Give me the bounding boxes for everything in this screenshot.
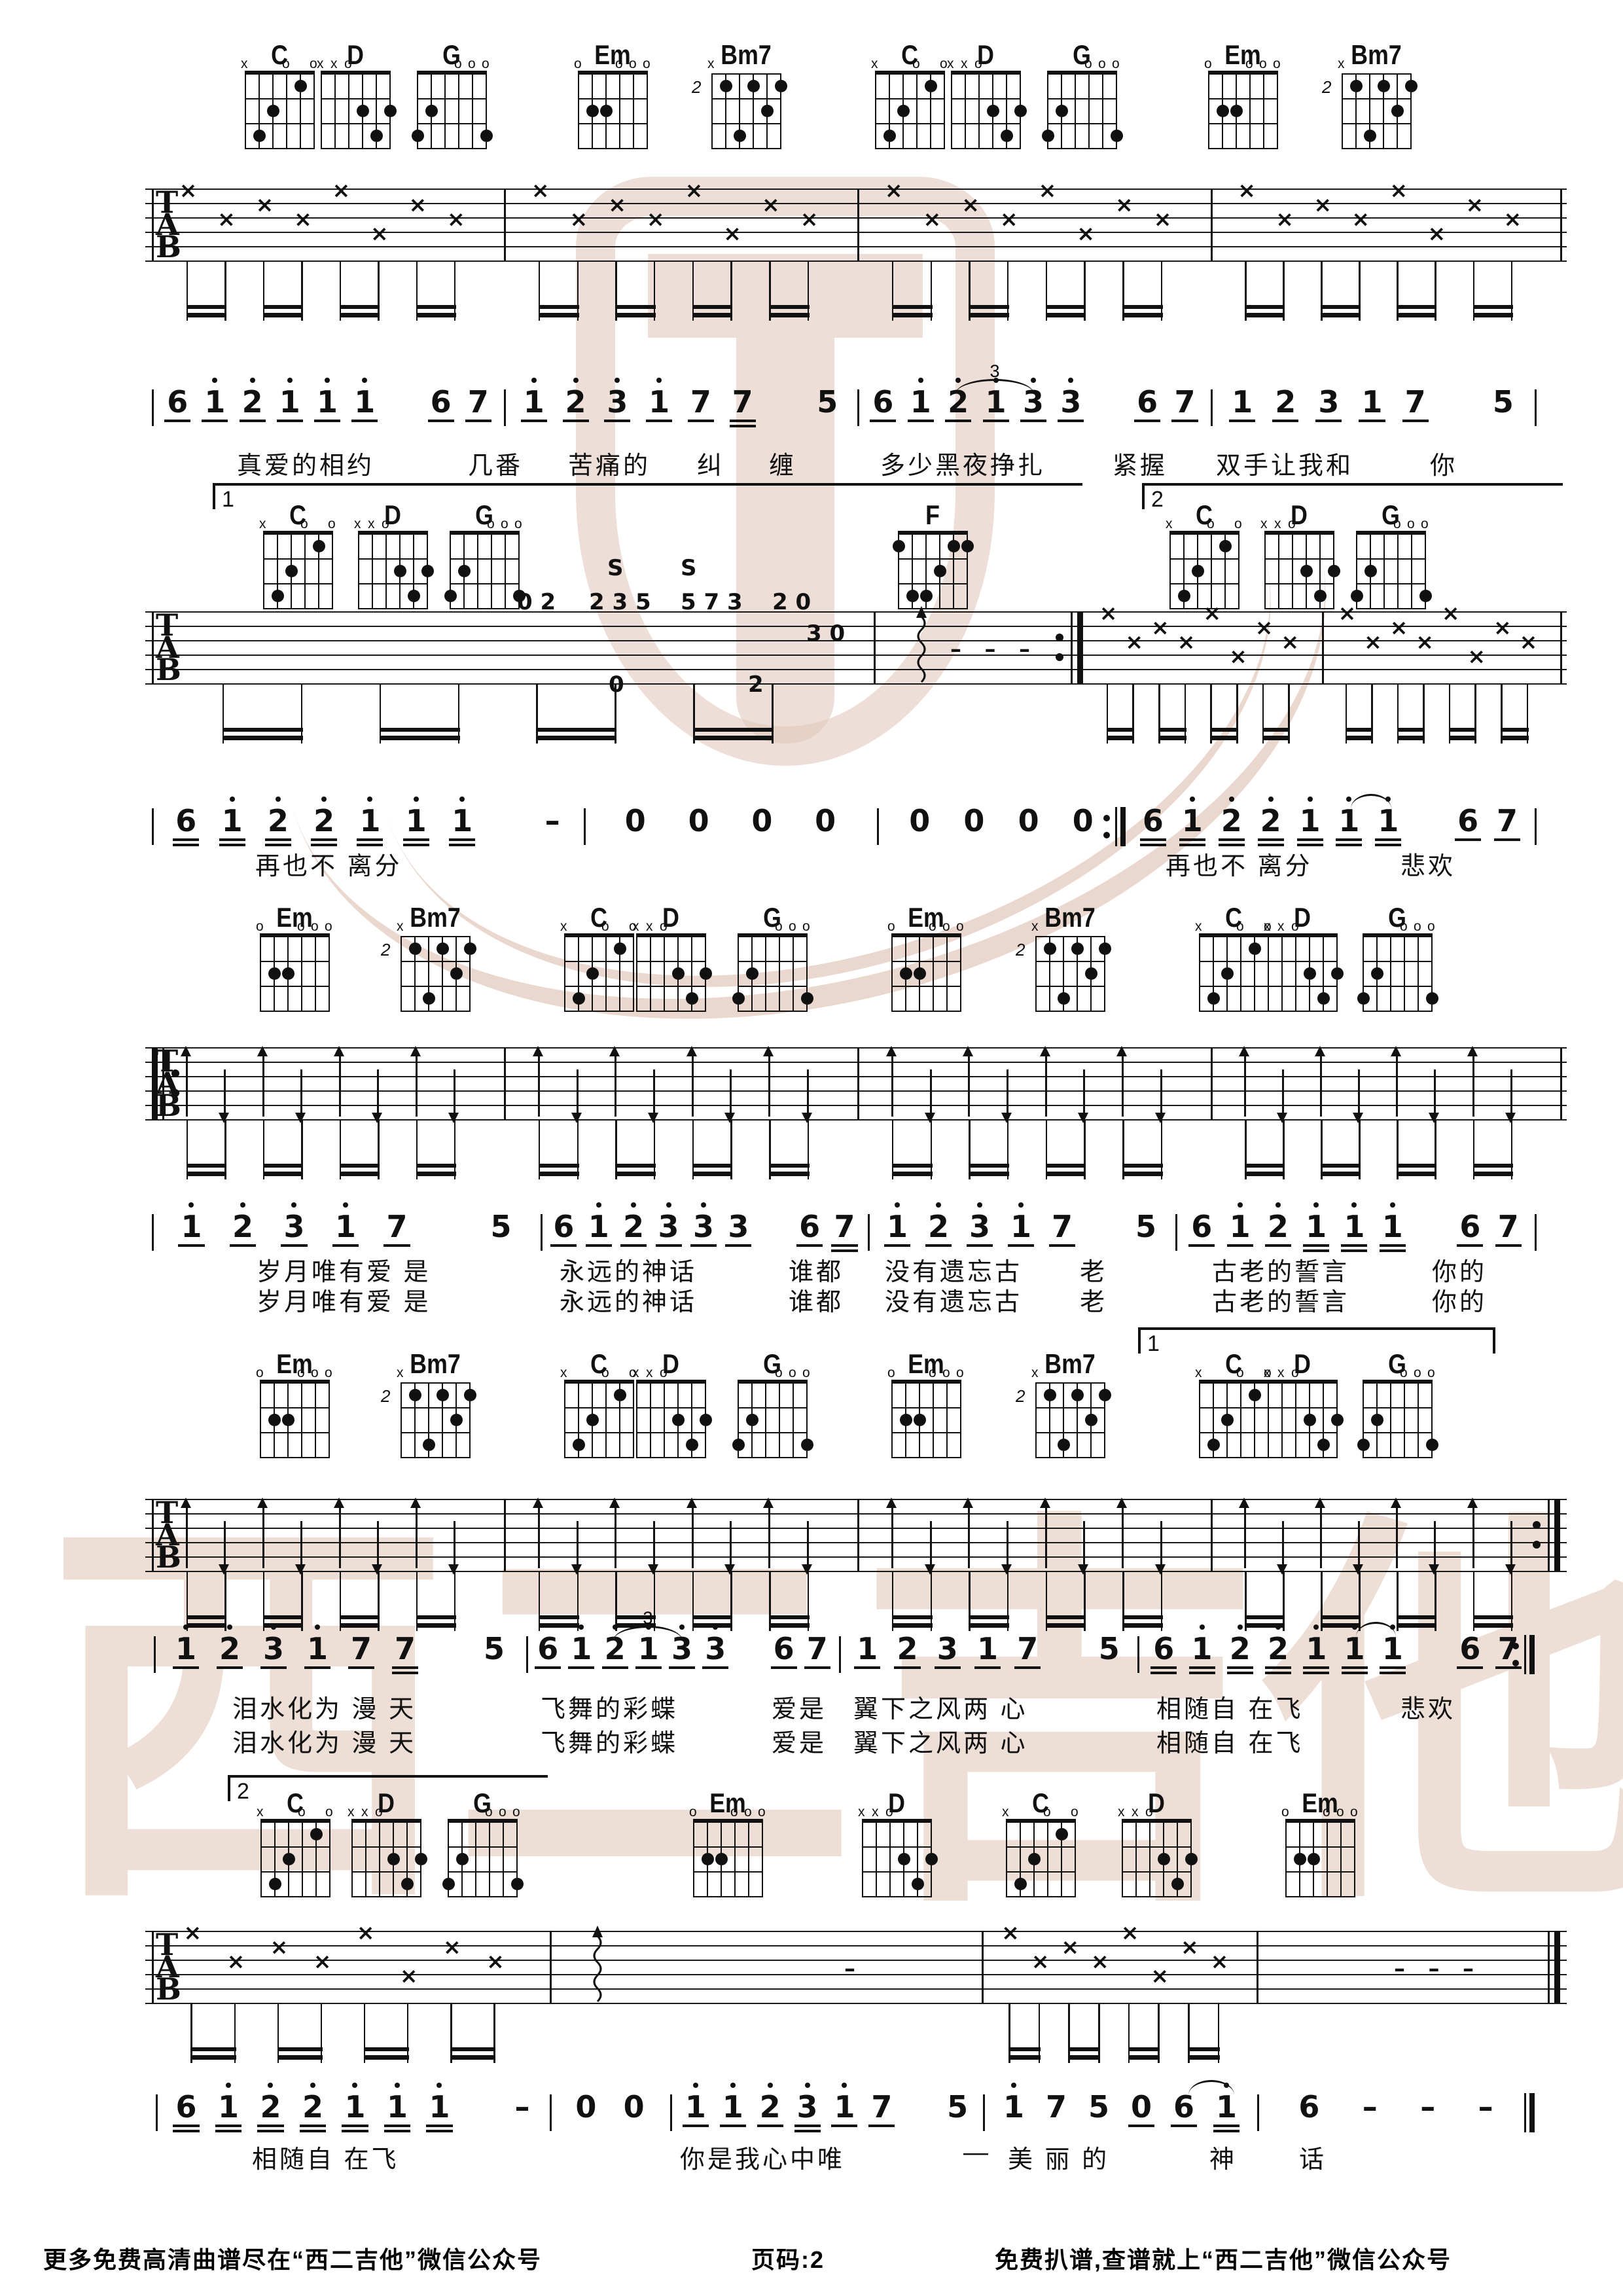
- jianpu-note: 7: [1404, 376, 1427, 427]
- beam: [1397, 1172, 1436, 1176]
- strum-arrow-stem: [416, 1507, 418, 1568]
- strum-arrow-stem: [768, 1507, 770, 1568]
- note-stem: [1321, 1572, 1323, 1631]
- jianpu-note: 2: [1266, 1623, 1290, 1674]
- muted-strum-x: ×: [1229, 643, 1247, 669]
- beam: [263, 313, 303, 317]
- octave-dot: [325, 378, 330, 383]
- strum-arrow-stem: [577, 1069, 579, 1117]
- underline-2: [1189, 1672, 1215, 1674]
- chord-finger-dot: [897, 105, 910, 117]
- beam: [1321, 305, 1361, 309]
- lyric-segment: 泪水化为 漫 天: [232, 1723, 416, 1759]
- underline-2: [1227, 1672, 1253, 1674]
- underline-2: [173, 844, 199, 846]
- jianpu-note: 1: [1181, 795, 1204, 846]
- jianpu-note: 1: [174, 1623, 198, 1674]
- chord-name: C: [565, 1348, 632, 1380]
- lyric-segment: 岁月唯有爱 是: [257, 1282, 431, 1318]
- strum-arrow-up-head: [609, 1498, 620, 1508]
- strum-arrow-stem: [891, 1507, 893, 1568]
- chord-finger-dot: [1085, 967, 1097, 980]
- strum-arrow-stem: [377, 1069, 379, 1117]
- chord-string-marker: x: [1260, 516, 1268, 532]
- note-stem: [1397, 1121, 1399, 1179]
- chord-string-marker: o: [1145, 1804, 1153, 1820]
- chord-nut: [1268, 933, 1338, 937]
- underline-2: [1150, 1672, 1177, 1674]
- underline: [1171, 2125, 1197, 2127]
- chord-finger-dot: [573, 1439, 585, 1451]
- note-stem: [364, 2004, 366, 2063]
- repeat-end-thin: [1548, 1499, 1550, 1571]
- underline: [1375, 838, 1401, 841]
- strum-arrow-stem: [186, 1507, 188, 1568]
- chord-finger-dot: [614, 942, 626, 955]
- underline: [1297, 838, 1323, 841]
- strum-arrow-stem: [1244, 1055, 1246, 1117]
- underline: [257, 2125, 283, 2127]
- chord-string-marker: o: [643, 56, 651, 72]
- strum-arrow-down-head: [1001, 1564, 1012, 1575]
- chord-finger-dot: [1249, 1389, 1261, 1401]
- chord-string-marker: x: [1195, 919, 1202, 935]
- octave-dot: [1229, 797, 1234, 802]
- chord-string-marker: o: [942, 919, 950, 935]
- strum-arrow-down-head: [648, 1113, 658, 1123]
- lyric-segment: 几番: [468, 445, 523, 481]
- jianpu-note: 1: [976, 1623, 999, 1674]
- chord-finger-dot: [423, 1439, 435, 1451]
- chord-string-marker: o: [1291, 919, 1299, 935]
- lyric-segment: 双手让我和: [1216, 445, 1353, 481]
- chord-string-marker: o: [1323, 1804, 1330, 1820]
- lyric-segment: 你是我心中唯: [680, 2139, 845, 2175]
- strum-arrow-stem: [768, 1055, 770, 1117]
- chord-nut: [260, 1819, 330, 1823]
- chord-finger-dot: [586, 1414, 599, 1426]
- chord-string-marker: x: [1166, 516, 1173, 532]
- strum-arrow-up-head: [1467, 1498, 1478, 1508]
- beam: [536, 728, 616, 732]
- lyric-segment: 古老的誓言: [1212, 1282, 1349, 1318]
- note-stem: [1046, 1121, 1048, 1179]
- chord-string-marker: o: [297, 919, 305, 935]
- beam: [1262, 736, 1291, 740]
- muted-strum-x: ×: [294, 206, 312, 232]
- note-stem: [1371, 685, 1373, 744]
- note-stem: [692, 1121, 694, 1179]
- lyric-segment: 飞舞的彩蝶: [541, 1689, 678, 1725]
- note-stem: [1527, 685, 1529, 744]
- muted-strum-x: ×: [1115, 192, 1133, 217]
- lyric-segment: 没有遗忘古: [885, 1282, 1022, 1318]
- jianpu-note: 3: [726, 1201, 750, 1252]
- strum-arrow-up-head: [181, 1046, 191, 1056]
- tab-barline: [1560, 611, 1562, 683]
- jianpu-note: 2: [1266, 1201, 1290, 1252]
- jianpu-note: 6: [1297, 2081, 1321, 2132]
- chord-finger-dot: [1317, 992, 1330, 1005]
- jianpu-note: 2: [259, 2081, 282, 2132]
- tab-barline: [152, 188, 154, 260]
- jianpu-spacer: [1056, 1623, 1080, 1644]
- chord-finger-dot: [914, 967, 926, 980]
- underline: [669, 1666, 695, 1669]
- underline: [465, 420, 491, 422]
- strum-arrow-down-head: [1353, 1564, 1363, 1575]
- beam: [187, 1164, 226, 1168]
- beam: [1128, 2055, 1160, 2060]
- jianpu-note: 1: [1360, 376, 1383, 427]
- strum-arrow-stem: [1434, 1069, 1436, 1117]
- muted-strum-x: ×: [762, 192, 780, 217]
- octave-dot: [701, 1202, 706, 1208]
- muted-strum-x: ×: [723, 221, 741, 246]
- jianpu-spacer: [437, 1201, 461, 1222]
- sheet-music-page: 西二吉他 TAB××××××××××××××××××××××××××××××××…: [0, 0, 1623, 2296]
- strum-arrow-stem: [615, 1507, 616, 1568]
- chord-nut: [1199, 933, 1269, 937]
- muted-strum-x: ×: [961, 192, 980, 217]
- jianpu-note: 5: [1087, 2081, 1111, 2132]
- note-stem: [1423, 685, 1425, 744]
- chord-string-marker: x: [1002, 1804, 1009, 1820]
- octave-dot: [1268, 797, 1274, 802]
- muted-strum-x: ×: [531, 177, 550, 203]
- note-stem: [1161, 262, 1163, 321]
- strum-arrow-stem: [1396, 1507, 1398, 1568]
- note-stem: [1007, 1121, 1009, 1179]
- chord-finger-dot: [511, 1878, 524, 1890]
- strum-arrow-stem: [1472, 1507, 1474, 1568]
- strum-arrow-up-head: [334, 1046, 344, 1056]
- chord-string-marker: o: [974, 56, 982, 72]
- chord-finger-dot: [702, 1853, 714, 1865]
- strum-arrow-stem: [1244, 1507, 1246, 1568]
- note-stem: [1473, 1121, 1475, 1179]
- beam: [416, 1164, 456, 1168]
- underline: [757, 2125, 783, 2127]
- chord-nut: [875, 71, 945, 75]
- beam: [277, 2047, 323, 2051]
- chord-finger-dot: [898, 1853, 910, 1865]
- muted-strum-x: ×: [800, 206, 819, 232]
- chord-finger-dot: [1178, 590, 1190, 602]
- note-stem: [769, 262, 771, 321]
- beam: [187, 313, 226, 317]
- tuplet-number: 3: [990, 361, 999, 382]
- chord-string-marker: x: [330, 56, 338, 72]
- beam: [1397, 736, 1425, 740]
- jianpu-note: 0: [1017, 795, 1041, 846]
- tab-barline: [1257, 1931, 1258, 2003]
- chord-string-marker: o: [574, 56, 582, 72]
- volta-bracket: 1: [213, 483, 1082, 509]
- chord-finger-dot: [1014, 105, 1027, 117]
- octave-dot: [679, 1624, 685, 1630]
- underline: [1342, 1666, 1368, 1669]
- chord-string-marker: x: [368, 516, 375, 532]
- strum-arrow-down-head: [295, 1564, 306, 1575]
- jianpu-note: 7: [1044, 2081, 1068, 2132]
- chord-finger-dot: [573, 992, 585, 1005]
- chord-string-marker: o: [1407, 516, 1415, 532]
- strum-arrow-stem: [730, 1069, 732, 1117]
- chord-finger-dot: [1221, 967, 1234, 980]
- chord-finger-dot: [1308, 1853, 1320, 1865]
- chord-string-marker: x: [1277, 1365, 1285, 1381]
- chord-finger-dot: [1350, 80, 1363, 92]
- strum-arrow-stem: [454, 1069, 455, 1117]
- muted-strum-x: ×: [256, 192, 274, 217]
- chord-nut: [358, 531, 428, 535]
- muted-strum-x: ×: [1099, 600, 1118, 626]
- beam: [340, 1172, 380, 1176]
- tab-annotation: 2 3 5: [589, 589, 651, 615]
- jianpu-note: 1: [1002, 2081, 1026, 2132]
- chord-string-marker: x: [257, 1804, 264, 1820]
- tab-annotation: –: [844, 1956, 855, 1982]
- underline: [1457, 1244, 1483, 1247]
- chord-string-marker: x: [1274, 516, 1281, 532]
- chord-string-marker: o: [802, 919, 810, 935]
- strum-arrow-stem: [416, 1055, 418, 1117]
- beam: [892, 305, 933, 309]
- beam: [539, 1615, 579, 1619]
- beam: [1188, 2055, 1220, 2060]
- beam: [340, 305, 380, 309]
- chord-finger-dot: [746, 967, 758, 980]
- jianpu-note: 0: [622, 2081, 646, 2132]
- chord-string-marker: o: [885, 1804, 893, 1820]
- beam: [416, 313, 456, 317]
- chord-nut: [738, 1380, 808, 1384]
- strum-arrow-up-head: [687, 1498, 697, 1508]
- jianpu-note: 0: [1071, 795, 1095, 846]
- tab-barline: [504, 1047, 506, 1119]
- chord-string-marker: o: [615, 56, 623, 72]
- repeat-start-thin: [162, 1047, 164, 1119]
- note-stem: [301, 685, 303, 744]
- jianpu-note: 0: [813, 795, 837, 846]
- chord-nut: [263, 531, 333, 535]
- chord-finger-dot: [720, 80, 732, 92]
- beam: [969, 305, 1009, 309]
- strum-arrow-stem: [224, 1069, 226, 1117]
- lyric-segment: 缠: [769, 445, 796, 481]
- muted-strum-x: ×: [486, 1948, 505, 1974]
- chord-finger-dot: [394, 565, 406, 577]
- strum-arrow-down-head: [802, 1113, 812, 1123]
- note-stem: [263, 1572, 265, 1631]
- beam: [1473, 305, 1513, 309]
- chord-string-marker: o: [300, 516, 308, 532]
- underline: [311, 838, 337, 841]
- note-stem: [1098, 2004, 1100, 2063]
- chord-string-marker: o: [601, 919, 609, 935]
- octave-dot: [693, 2083, 698, 2088]
- strum-arrow-stem: [1510, 1521, 1512, 1568]
- strum-arrow-down-head: [1078, 1113, 1088, 1123]
- muted-strum-x: ×: [313, 1948, 332, 1974]
- note-stem: [1435, 1572, 1436, 1631]
- chord-base-fret: 2: [381, 940, 390, 960]
- octave-dot: [656, 378, 662, 383]
- octave-dot: [613, 1624, 618, 1630]
- note-stem: [1321, 262, 1323, 321]
- underline-2: [1342, 1672, 1368, 1674]
- jianpu-note: 1: [522, 376, 546, 427]
- note-stem: [615, 262, 617, 321]
- muted-strum-x: ×: [447, 206, 465, 232]
- beam: [263, 1172, 303, 1176]
- chord-finger-dot: [912, 1878, 924, 1890]
- jianpu-note: 6: [871, 376, 895, 427]
- lyric-segment: 翼下之风两 心: [853, 1689, 1028, 1725]
- strum-arrow-stem: [377, 1521, 379, 1568]
- tab-barline: [1322, 611, 1324, 683]
- chord-string-marker: o: [775, 919, 783, 935]
- tab-annotation: – – –: [1394, 1956, 1474, 1982]
- jianpu-spacer: [1419, 1623, 1444, 1644]
- tab-annotation: 3 0: [806, 620, 845, 647]
- repeat-dot: [171, 1089, 179, 1097]
- beam: [1473, 1164, 1513, 1168]
- beam: [364, 2047, 409, 2051]
- octave-dot: [573, 378, 579, 383]
- jianpu-note: 7: [1497, 1201, 1520, 1252]
- jianpu-note: 3: [796, 2081, 819, 2132]
- chord-string-marker: o: [311, 1365, 319, 1381]
- note-stem: [1397, 262, 1399, 321]
- chord-finger-dot: [1028, 1853, 1041, 1865]
- strum-arrow-up-head: [1239, 1046, 1249, 1056]
- lyric-segment: 你的: [1432, 1282, 1487, 1318]
- jianpu-spacer: [1416, 795, 1440, 816]
- strum-arrow-stem: [1007, 1069, 1008, 1117]
- muted-strum-x: ×: [1351, 206, 1370, 232]
- note-stem: [1245, 1572, 1247, 1631]
- underline-2: [1375, 844, 1401, 846]
- note-stem: [301, 1572, 303, 1631]
- underline: [357, 838, 383, 841]
- beam: [769, 305, 810, 309]
- note-stem: [1185, 685, 1186, 744]
- note-stem: [301, 262, 303, 321]
- strum-arrow-stem: [615, 1055, 616, 1117]
- strum-arrow-up-head: [687, 1046, 697, 1056]
- underline-2: [1213, 2130, 1240, 2132]
- chord-string-marker: o: [1400, 919, 1408, 935]
- underline: [1058, 420, 1084, 422]
- underline: [935, 1666, 961, 1669]
- beam: [1473, 313, 1513, 317]
- note-stem: [693, 685, 695, 744]
- octave-dot: [188, 1202, 194, 1208]
- chord-name: Bm7: [1037, 902, 1103, 933]
- note-stem: [1039, 2004, 1041, 2063]
- beam: [1397, 313, 1436, 317]
- jianpu-measure: 61211167: [152, 376, 504, 442]
- chord-finger-dot: [401, 1878, 414, 1890]
- note-stem: [263, 262, 265, 321]
- note-stem: [340, 1572, 342, 1631]
- jianpu-repeat-dot: [1103, 832, 1110, 838]
- jianpu-note: 1: [1230, 376, 1254, 427]
- octave-dot: [226, 2083, 231, 2088]
- beam: [1501, 736, 1529, 740]
- tuplet-number: 3: [643, 1608, 652, 1628]
- volta-bracket: 1: [1138, 1327, 1495, 1354]
- chord-finger-dot: [600, 105, 613, 117]
- strum-arrow-down-head: [925, 1564, 935, 1575]
- note-stem: [577, 262, 579, 321]
- note-stem: [1084, 262, 1086, 321]
- chord-nut: [738, 933, 808, 937]
- jianpu-spacer: [1097, 376, 1122, 397]
- jianpu-repeat-dot: [1512, 1660, 1519, 1666]
- beam: [190, 2055, 236, 2060]
- beam: [539, 305, 579, 309]
- note-stem: [263, 1121, 265, 1179]
- underline-2: [1336, 844, 1362, 846]
- chord-nut: [636, 933, 706, 937]
- note-stem: [1236, 685, 1238, 744]
- tab-annotation: 0: [609, 672, 624, 698]
- octave-dot: [1313, 1624, 1319, 1630]
- chord-finger-dot: [586, 967, 599, 980]
- jianpu-measure: 0000: [877, 795, 1126, 861]
- underline: [403, 838, 429, 841]
- underline-2: [1380, 1672, 1406, 1674]
- muted-strum-x: ×: [1275, 206, 1294, 232]
- chord-finger-dot: [1111, 130, 1123, 142]
- note-stem: [458, 685, 460, 744]
- underline: [1341, 1244, 1367, 1247]
- muted-strum-x: ×: [227, 1948, 245, 1974]
- jianpu-note: 1: [427, 2081, 451, 2132]
- chord-finger-dot: [384, 105, 397, 117]
- note-stem: [1359, 1121, 1361, 1179]
- underline: [568, 1666, 594, 1669]
- strum-arrow-down-head: [724, 1564, 735, 1575]
- strum-arrow-up-head: [763, 1498, 774, 1508]
- beam: [1262, 728, 1291, 732]
- octave-dot: [895, 1202, 900, 1208]
- chord-nut: [862, 1819, 932, 1823]
- note-stem: [615, 1572, 617, 1631]
- chord-finger-dot: [1304, 967, 1316, 980]
- jianpu-note: 0: [687, 795, 711, 846]
- chord-string-marker: x: [707, 56, 715, 72]
- jianpu-spacer: [907, 2081, 932, 2102]
- muted-strum-x: ×: [1125, 629, 1143, 655]
- strum-arrow-stem: [807, 1521, 809, 1568]
- octave-dot: [212, 378, 217, 383]
- repeat-dot: [171, 1069, 179, 1077]
- jianpu-note: 3: [968, 1201, 991, 1252]
- strum-arrow-up-head: [1467, 1046, 1478, 1056]
- note-stem: [931, 1572, 933, 1631]
- jianpu-barline: [1535, 808, 1537, 845]
- note-stem: [1435, 1121, 1436, 1179]
- note-stem: [654, 1121, 656, 1179]
- beam: [1397, 1615, 1436, 1619]
- beam: [769, 1615, 810, 1619]
- strum-arrow-stem: [653, 1069, 655, 1117]
- octave-dot: [250, 378, 255, 383]
